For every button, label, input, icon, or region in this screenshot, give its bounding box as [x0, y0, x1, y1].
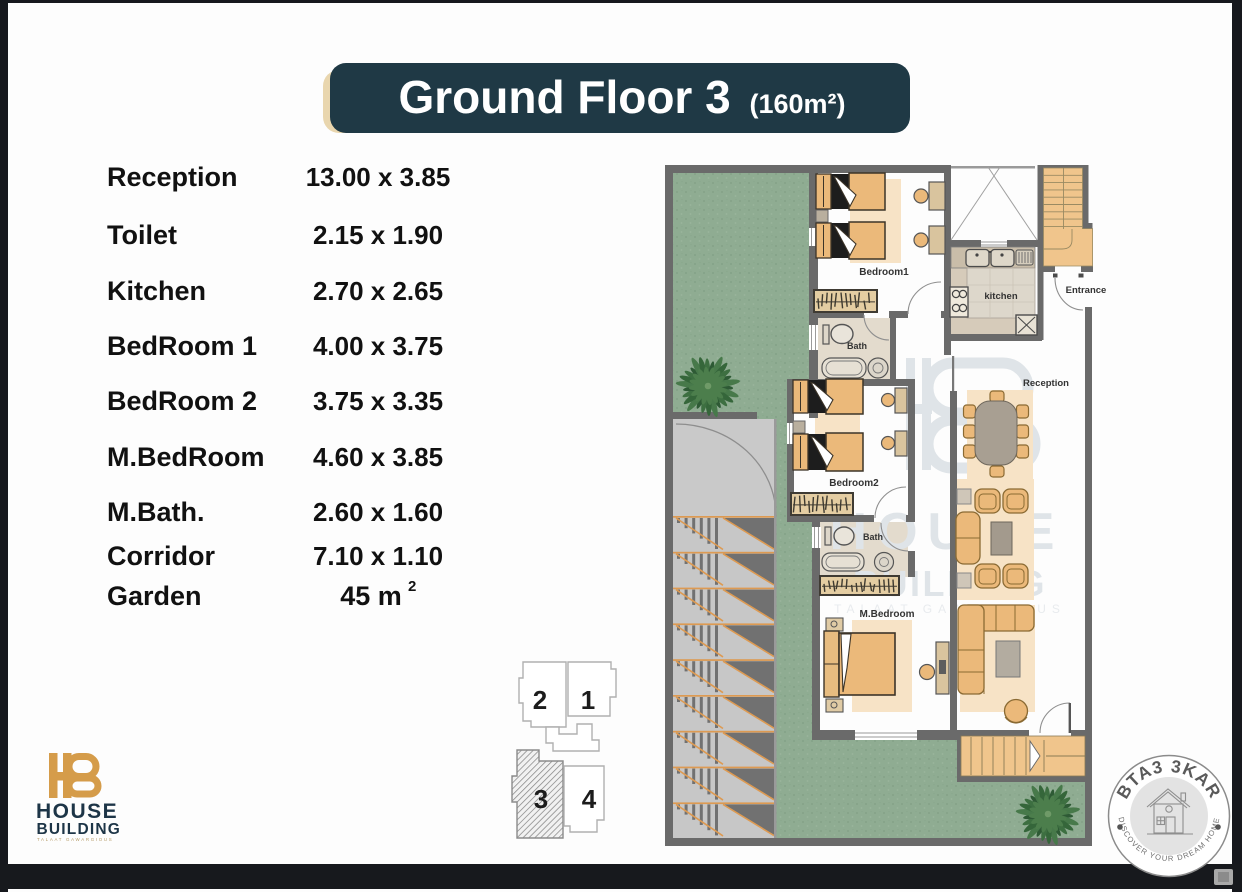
svg-text:kitchen: kitchen [984, 291, 1017, 302]
svg-text:13.00 x 3.85: 13.00 x 3.85 [306, 162, 451, 192]
svg-text:Bedroom1: Bedroom1 [859, 267, 909, 278]
svg-text:TALAAT GAWARGIOUS: TALAAT GAWARGIOUS [37, 837, 113, 842]
svg-text:Bedroom2: Bedroom2 [829, 478, 879, 489]
svg-text:BedRoom 2: BedRoom 2 [107, 386, 257, 416]
svg-text:2.15 x 1.90: 2.15 x 1.90 [313, 220, 443, 250]
svg-text:M.BedRoom: M.BedRoom [107, 442, 265, 472]
svg-text:BedRoom 1: BedRoom 1 [107, 331, 257, 361]
svg-text:Reception: Reception [1023, 378, 1069, 389]
svg-text:7.10 x 1.10: 7.10 x 1.10 [313, 541, 443, 571]
svg-text:M.Bedroom: M.Bedroom [860, 609, 915, 620]
svg-text:2: 2 [408, 578, 416, 595]
svg-text:2.70 x 2.65: 2.70 x 2.65 [313, 276, 443, 306]
svg-text:Entrance: Entrance [1066, 285, 1107, 296]
svg-text:3.75 x 3.35: 3.75 x 3.35 [313, 386, 443, 416]
svg-text:Toilet: Toilet [107, 220, 177, 250]
svg-text:Garden: Garden [107, 581, 202, 611]
svg-text:4.60 x 3.85: 4.60 x 3.85 [313, 442, 443, 472]
svg-text:Corridor: Corridor [107, 541, 215, 571]
svg-text:45 m: 45 m [340, 581, 402, 611]
svg-text:BUILDING: BUILDING [37, 821, 122, 838]
svg-text:Bath: Bath [863, 532, 883, 542]
svg-text:Bath: Bath [847, 341, 867, 351]
svg-text:HOUSE: HOUSE [36, 800, 118, 823]
svg-text:1: 1 [581, 685, 595, 715]
svg-text:4: 4 [582, 784, 597, 814]
svg-text:Kitchen: Kitchen [107, 276, 206, 306]
svg-text:M.Bath.: M.Bath. [107, 497, 205, 527]
svg-text:2.60 x 1.60: 2.60 x 1.60 [313, 497, 443, 527]
svg-text:2: 2 [533, 685, 547, 715]
svg-text:Reception: Reception [107, 162, 238, 192]
svg-text:3: 3 [534, 784, 548, 814]
svg-text:4.00 x 3.75: 4.00 x 3.75 [313, 331, 443, 361]
